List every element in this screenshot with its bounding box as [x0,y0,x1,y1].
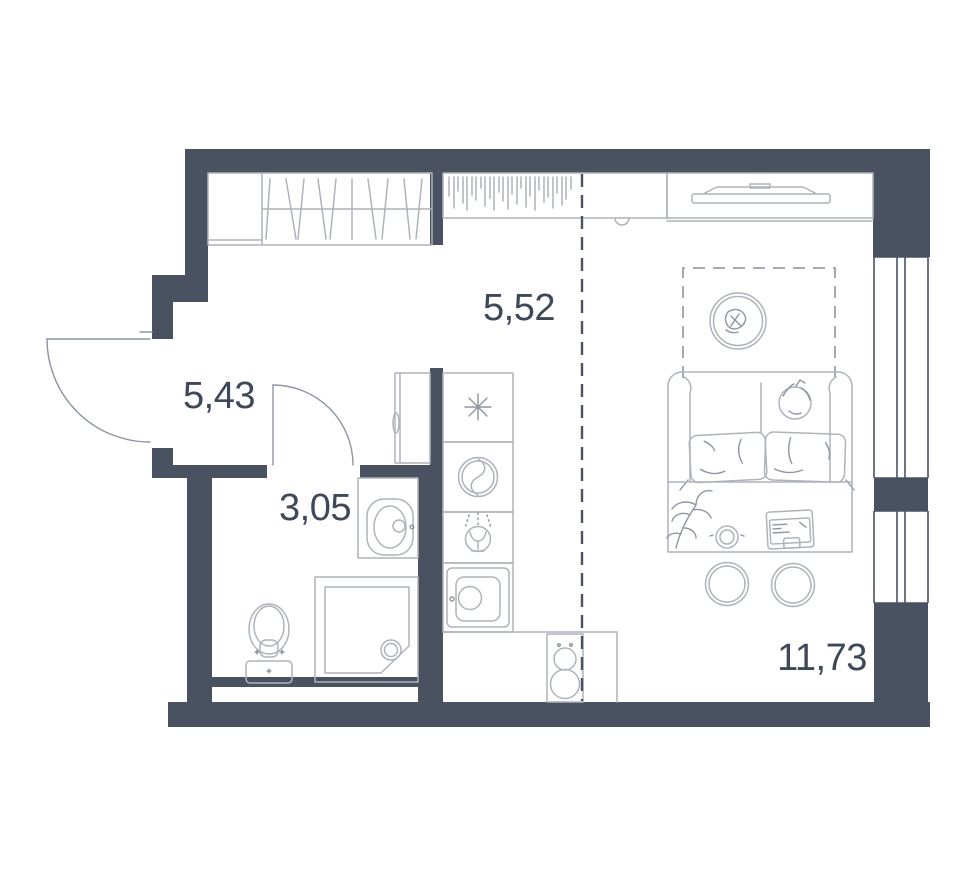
hallway-cabinet [393,373,430,463]
stove [547,634,583,702]
kitchen-sink-faucet [459,587,482,610]
wall-window-pier [874,478,928,511]
wall-left-above-door [152,302,173,339]
wall-bathroom-right [418,465,443,702]
rug-dashed-outline [683,268,835,378]
ball-cushion [779,380,811,419]
desk [667,482,852,552]
wardrobe-with-hangers [208,173,432,245]
stool-right [772,564,815,607]
curtain-closet [443,173,667,225]
sink-drain-dot [410,525,414,529]
tv [692,184,830,203]
windows [874,257,928,603]
kitchen-sink-inner [456,577,500,621]
stove-knob-1 [558,644,561,647]
stove-burner-large [551,670,580,699]
bathroom-door-swing-arc [273,385,353,465]
stool-left [706,563,749,606]
dishwasher [443,512,513,563]
tv-mount [750,184,770,188]
wall-top [185,149,873,173]
shower-tray-outer [315,577,418,682]
sink-faucet [393,520,405,532]
kitchen-sink [443,563,513,632]
dishwasher-glass-icon [470,532,486,551]
stove-burner-small [554,648,576,670]
tv-console [667,173,873,221]
rug [683,268,835,378]
wall-left-pier [152,275,208,302]
stools [706,563,815,607]
kitchen-units [443,373,617,702]
wall-left-below-door [152,448,173,465]
desk-outline [668,482,852,552]
table-inner [714,297,763,346]
cup [710,526,744,548]
room-label-hallway: 5,43 [183,375,255,417]
sink-basin-inner [374,506,406,548]
shower-drain-inner [385,644,398,657]
entry-door-swing-arc [47,339,150,442]
floor-plan-svg: 5,43 3,05 5,52 11,73 [0,0,973,880]
room-label-bathroom: 3,05 [279,487,351,529]
washing-machine [443,442,513,512]
fridge-freezer [443,373,513,442]
kitchen-counter [443,632,617,702]
wall-bathroom-left [187,478,212,702]
wall-bathroom-top [152,465,267,478]
wall-hall-kitchen-lower [430,368,443,465]
sofa-bed [668,372,854,490]
laptop [766,510,814,549]
window-upper [874,257,928,478]
table-outer [710,293,766,349]
room-label-living-room: 11,73 [777,637,867,679]
sofa-outline [668,372,852,482]
closet-handle-notch [615,218,629,225]
curtain-strokes [449,177,571,210]
bathroom-sink [358,478,418,558]
bathroom-door [273,385,353,465]
table-plant-sketch [726,309,746,332]
pillow-left [689,432,767,483]
floor-plan-page: 5,43 3,05 5,52 11,73 [0,0,973,880]
pillow-right [764,432,846,483]
hallway-cabinet-handle [393,413,399,433]
desk-plant [667,491,712,548]
tv-console-outline [667,173,873,218]
window-lower [874,511,928,603]
snowflake-icon [465,394,491,420]
stove-knob-2 [570,644,573,647]
room-labels: 5,43 3,05 5,52 11,73 [183,287,867,679]
wall-bottom-right-block [874,603,928,702]
shower-tray-inner [325,587,409,673]
toilet [246,604,292,683]
kitchen-sink-handle-dot [450,597,454,601]
round-table [710,293,766,349]
wall-bathroom-top-right [360,465,418,478]
sofa-arm-right [829,377,836,482]
entry-door [47,332,152,442]
counter-edge [443,632,617,702]
tv-bar [692,194,830,203]
room-label-kitchen: 5,52 [483,287,555,329]
washer-s-curve [471,459,485,495]
wall-top-right-corner [873,149,930,257]
shower [315,577,418,682]
wall-bottom [168,702,930,727]
